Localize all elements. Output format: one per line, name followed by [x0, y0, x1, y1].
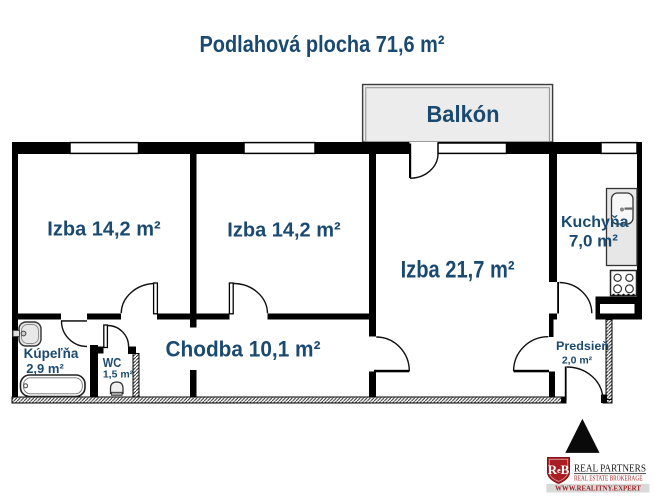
- svg-text:Izba 14,2 m²: Izba 14,2 m²: [47, 219, 161, 241]
- svg-text:Kúpeľňa: Kúpeľňa: [24, 346, 79, 361]
- svg-text:2,0 m²: 2,0 m²: [562, 355, 593, 367]
- svg-text:Podlahová plocha 71,6 m²: Podlahová plocha 71,6 m²: [200, 31, 445, 57]
- svg-text:Balkón: Balkón: [427, 101, 500, 127]
- svg-text:REAL ESTATE BROKERAGE: REAL ESTATE BROKERAGE: [574, 474, 643, 483]
- svg-text:Chodba 10,1 m²: Chodba 10,1 m²: [166, 337, 321, 362]
- svg-text:2,9 m²: 2,9 m²: [26, 361, 64, 376]
- svg-text:Kuchyňa: Kuchyňa: [561, 214, 629, 231]
- svg-text:Predsieň: Predsieň: [556, 339, 609, 353]
- svg-text:Izba 14,2 m²: Izba 14,2 m²: [227, 220, 341, 242]
- svg-text:WWW.REALITNY.EXPERT: WWW.REALITNY.EXPERT: [555, 485, 641, 492]
- svg-text:Izba 21,7 m²: Izba 21,7 m²: [401, 257, 515, 284]
- svg-text:7,0 m²: 7,0 m²: [569, 232, 618, 251]
- svg-text:1,5 m²: 1,5 m²: [103, 369, 134, 381]
